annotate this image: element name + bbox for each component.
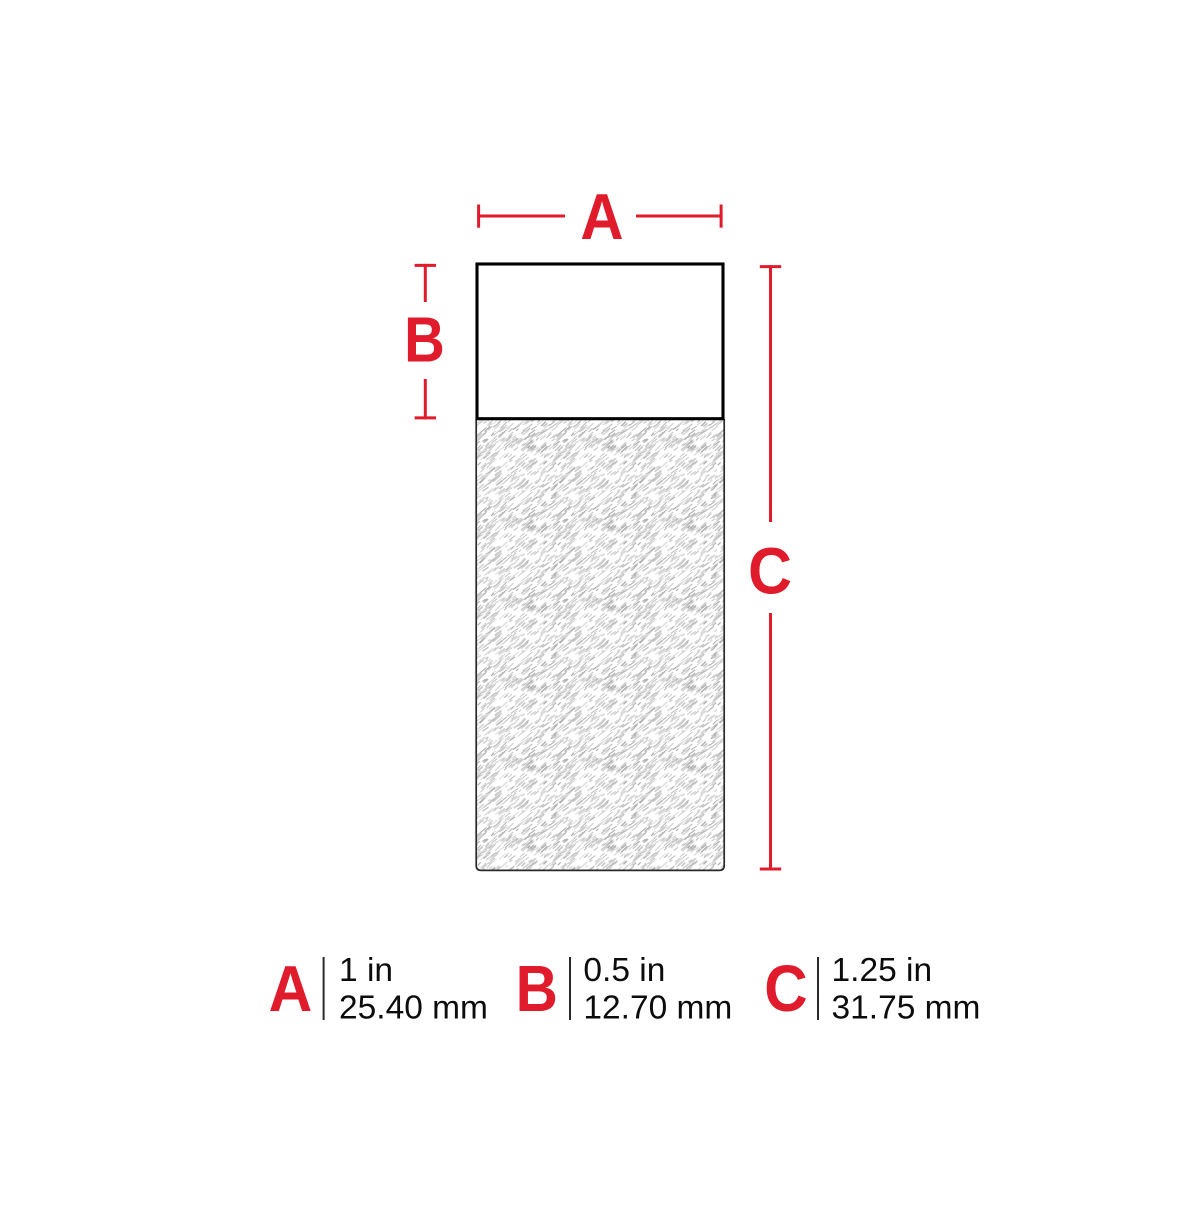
svg-text:0.5 in: 0.5 in (583, 952, 665, 989)
svg-text:B: B (404, 303, 445, 375)
svg-text:A: A (269, 953, 313, 1025)
svg-text:C: C (748, 535, 792, 608)
svg-text:1 in: 1 in (339, 952, 393, 989)
svg-text:25.40 mm: 25.40 mm (339, 990, 488, 1027)
svg-text:12.70 mm: 12.70 mm (583, 990, 732, 1027)
svg-text:1.25 in: 1.25 in (832, 952, 933, 989)
svg-text:C: C (764, 952, 807, 1025)
svg-text:B: B (516, 953, 558, 1026)
svg-text:31.75 mm: 31.75 mm (832, 990, 981, 1027)
svg-text:A: A (580, 181, 623, 254)
